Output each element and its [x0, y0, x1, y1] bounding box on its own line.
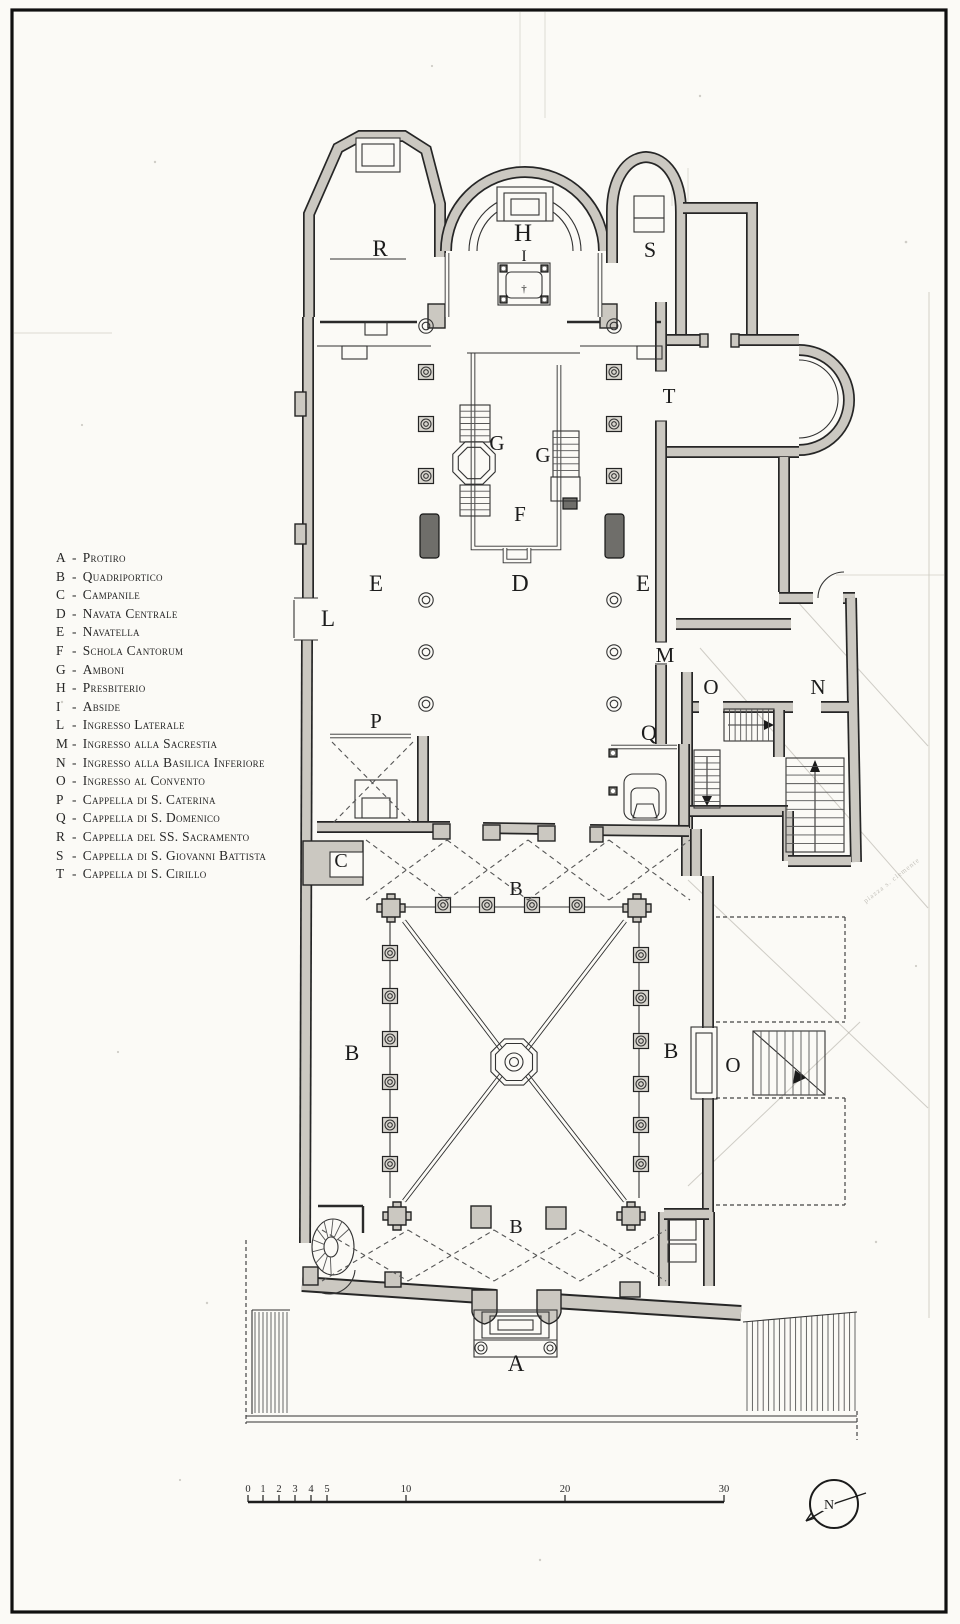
scale-tick-label: 2: [276, 1484, 281, 1495]
legend-item-T: T-Cappella di S. Cirillo: [56, 866, 266, 885]
legend-item-M: M-Ingresso alla Sacrestia: [56, 736, 266, 755]
campanile: [303, 841, 363, 885]
legend-label: Navatella: [83, 624, 140, 640]
nave-pier: [420, 514, 439, 558]
north-compass: N: [806, 1480, 866, 1528]
plan-label-N: N: [810, 675, 825, 699]
legend-label: Cappella di S. Cirillo: [83, 866, 207, 882]
legend-dash: -: [72, 680, 77, 696]
legend-item-O: O-Ingresso al Convento: [56, 773, 266, 792]
plan-label-D: D: [511, 571, 528, 597]
legend-label: Campanile: [83, 587, 140, 603]
legend-key: T: [56, 866, 71, 882]
legend-label: Amboni: [83, 662, 124, 678]
column-marker: [419, 645, 433, 659]
nave-pier: [605, 514, 624, 558]
column-marker: [419, 697, 433, 711]
plan-label-B: B: [509, 1216, 522, 1238]
legend-dash: -: [72, 643, 77, 659]
legend-item-R: R-Cappella del SS. Sacramento: [56, 829, 266, 848]
stair-arrow-icon: [702, 796, 712, 806]
legend-item-B: B-Quadriportico: [56, 569, 266, 588]
legend-dash: -: [72, 699, 77, 715]
legend-key: R: [56, 829, 71, 845]
plan-label-E: E: [369, 571, 383, 596]
scale-tick-label: 5: [324, 1484, 329, 1495]
scale-tick-label: 20: [560, 1484, 571, 1495]
plan-label-F: F: [514, 502, 526, 526]
pencil-annotation: piazza s. clemente: [862, 856, 921, 905]
legend-item-H: H-Presbiterio: [56, 680, 266, 699]
legend-label: Ingresso Laterale: [83, 717, 185, 733]
legend-dash: -: [72, 848, 77, 864]
legend-item-L: L-Ingresso Laterale: [56, 717, 266, 736]
scale-tick-label: 3: [292, 1484, 297, 1495]
legend-dash: -: [72, 717, 77, 733]
plan-label-H: H: [514, 220, 532, 247]
legend-label: Quadriportico: [83, 569, 163, 585]
plan-label-M: M: [656, 643, 675, 667]
legend-key: B: [56, 569, 71, 585]
plan-label-L: L: [321, 606, 335, 631]
legend-dash: -: [72, 866, 77, 882]
legend-key: F: [56, 643, 71, 659]
legend-dash: -: [72, 829, 77, 845]
legend-key: M: [56, 736, 71, 752]
legend-key: S: [56, 848, 71, 864]
plan-label-B: B: [664, 1038, 679, 1063]
legend-dash: -: [72, 755, 77, 771]
stair-arrow-icon: [810, 760, 820, 772]
plan-label-T: T: [663, 384, 676, 408]
chapel-r-altar: [356, 138, 400, 172]
spiral-stair: [312, 1219, 354, 1275]
altar-cross-icon: †: [521, 283, 527, 295]
plan-label-O: O: [725, 1053, 740, 1077]
legend-label: Schola Cantorum: [83, 643, 184, 659]
portal-jamb: [472, 1290, 497, 1324]
stair-arrow-icon: [764, 720, 774, 730]
legend-item-Q: Q-Cappella di S. Domenico: [56, 810, 266, 829]
legend-dash: -: [72, 569, 77, 585]
scale-tick-label: 4: [308, 1484, 314, 1495]
scale-tick-label: 10: [401, 1484, 412, 1495]
legend: A-ProtiroB-QuadriporticoC-CampanileD-Nav…: [56, 550, 266, 885]
drawing-sheet: †: [0, 0, 960, 1624]
legend-dash: -: [72, 624, 77, 640]
column-marker: [419, 593, 433, 607]
amboni: [460, 405, 580, 516]
legend-key: A: [56, 550, 71, 566]
pencil-note: piazza s. clemente: [862, 856, 921, 905]
fountain: [491, 1039, 537, 1085]
legend-key: I: [56, 699, 71, 715]
scale-tick-label: 0: [245, 1484, 250, 1495]
compass-n-label: N: [824, 1498, 834, 1513]
plan-label-S: S: [644, 237, 656, 262]
plan-label-B: B: [509, 878, 522, 900]
plan-label-A: A: [508, 1351, 525, 1376]
plan-label-G: G: [535, 443, 550, 467]
legend-label: Cappella di S. Caterina: [83, 792, 216, 808]
column-marker: [607, 697, 621, 711]
plan-label-G: G: [489, 431, 504, 455]
legend-dash: -: [72, 773, 77, 789]
legend-label: Presbiterio: [83, 680, 146, 696]
plan-label-O: O: [703, 675, 718, 699]
legend-label: Cappella di S. Giovanni Battista: [83, 848, 266, 864]
legend-item-I: I-Abside: [56, 699, 266, 718]
legend-dash: -: [72, 550, 77, 566]
legend-dash: -: [72, 606, 77, 622]
legend-dash: -: [72, 736, 77, 752]
legend-key: E: [56, 624, 71, 640]
legend-item-A: A-Protiro: [56, 550, 266, 569]
legend-label: Ingresso alla Basilica Inferiore: [83, 755, 265, 771]
legend-item-C: C-Campanile: [56, 587, 266, 606]
scale-bar: 012345102030: [245, 1484, 729, 1502]
column-marker: [607, 645, 621, 659]
legend-item-G: G-Amboni: [56, 662, 266, 681]
legend-label: Cappella di S. Domenico: [83, 810, 220, 826]
legend-key: Q: [56, 810, 71, 826]
legend-item-N: N-Ingresso alla Basilica Inferiore: [56, 755, 266, 774]
plan-label-I: I: [521, 248, 526, 265]
legend-item-D: D-Navata Centrale: [56, 606, 266, 625]
chapel-q-altar: [624, 774, 666, 820]
legend-key: G: [56, 662, 71, 678]
plan-label-Q: Q: [641, 720, 657, 745]
plan-label-E: E: [636, 571, 650, 596]
legend-dash: -: [72, 792, 77, 808]
legend-item-F: F-Schola Cantorum: [56, 643, 266, 662]
legend-dash: -: [72, 810, 77, 826]
legend-key: H: [56, 680, 71, 696]
plan-label-P: P: [370, 709, 382, 733]
corner-pier: [617, 1202, 645, 1230]
legend-label: Abside: [83, 699, 120, 715]
legend-label: Protiro: [83, 550, 126, 566]
corner-pier: [383, 1202, 411, 1230]
legend-key: D: [56, 606, 71, 622]
fine-lines: [246, 195, 857, 1440]
legend-key: O: [56, 773, 71, 789]
railings-and-screens: [330, 253, 677, 1201]
chapel-p-altar: [355, 780, 397, 818]
legend-label: Cappella del SS. Sacramento: [83, 829, 250, 845]
column-marker: [607, 593, 621, 607]
legend-item-E: E-Navatella: [56, 624, 266, 643]
scale-tick-label: 1: [260, 1484, 265, 1495]
corner-pier: [377, 894, 405, 922]
legend-label: Navata Centrale: [83, 606, 178, 622]
plan-label-C: C: [334, 850, 347, 872]
plan-label-B: B: [345, 1040, 360, 1065]
legend-item-S: S-Cappella di S. Giovanni Battista: [56, 848, 266, 867]
corner-pier: [623, 894, 651, 922]
plan-label-R: R: [372, 236, 388, 261]
legend-label: Ingresso alla Sacrestia: [83, 736, 218, 752]
legend-label: Ingresso al Convento: [83, 773, 205, 789]
legend-dash: -: [72, 587, 77, 603]
legend-item-P: P-Cappella di S. Caterina: [56, 792, 266, 811]
legend-key: C: [56, 587, 71, 603]
legend-key: L: [56, 717, 71, 733]
legend-key: P: [56, 792, 71, 808]
ambo-step: [563, 498, 577, 509]
chapel-s-altar: [634, 196, 664, 218]
legend-dash: -: [72, 662, 77, 678]
legend-key: N: [56, 755, 71, 771]
scale-tick-label: 30: [719, 1484, 730, 1495]
